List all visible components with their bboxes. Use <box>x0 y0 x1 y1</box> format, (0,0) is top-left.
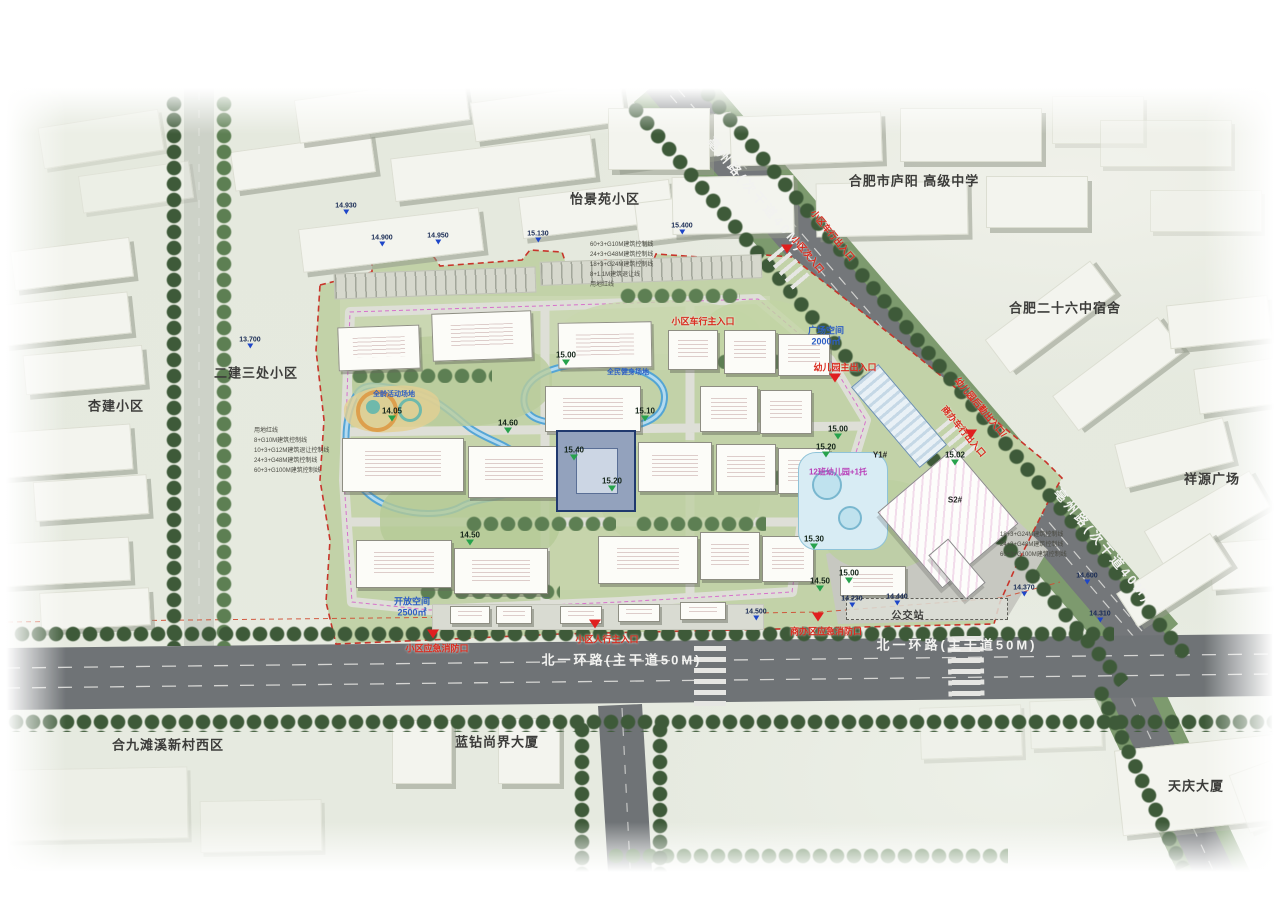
elevation-marker: 15.20 <box>602 477 622 496</box>
playground-circle <box>838 506 862 530</box>
tree-row <box>8 714 1272 732</box>
area-label: 2000㎡ <box>811 335 840 348</box>
tree-grove <box>636 516 766 531</box>
tree-row <box>166 96 182 646</box>
residential-building <box>598 536 698 584</box>
playground-ring <box>366 400 380 414</box>
context-building <box>900 108 1042 162</box>
blue-marker: 15.130 <box>527 231 548 246</box>
context-label: 二建三处小区 <box>214 363 298 382</box>
entrance-label: 小区车行主入口 <box>671 315 734 328</box>
residential-building <box>356 540 452 588</box>
blue-marker: 14.230 <box>841 596 862 611</box>
tree-grove <box>466 516 616 531</box>
setback-annotation: 用地红线8+G10M建筑控制线10+3+G12M建筑退让控制线24+3+G48M… <box>254 426 329 476</box>
road-label: 北一环路(主干道50M) <box>542 650 703 669</box>
context-label: 合九滩溪新村西区 <box>112 735 224 754</box>
context-building <box>1100 120 1232 167</box>
context-label: 天庆大厦 <box>1168 776 1224 795</box>
elevation-marker: 14.50 <box>460 531 480 550</box>
blue-marker: 13.700 <box>239 337 260 352</box>
setback-annotation: 60+3+G10M建筑控制线24+3+G48M建筑控制线18+3+G24M建筑控… <box>590 240 653 290</box>
blue-marker: 14.440 <box>886 594 907 609</box>
road-label: 北一环路(主干道50M) <box>877 635 1038 654</box>
setback-annotation: 18+3+G24M建筑控制线24+3+G48M建筑控制线60+3+G100M建筑… <box>1000 530 1067 560</box>
blue-marker: 15.400 <box>671 223 692 238</box>
tree-grove <box>352 368 492 383</box>
context-label: 合肥二十六中宿舍 <box>1009 298 1121 317</box>
elevation-marker: 15.00 <box>556 351 576 370</box>
map-canvas: 怡景苑小区合肥市庐阳 高级中学合肥二十六中宿舍祥源广场二建三处小区杏建小区合九滩… <box>6 88 1274 872</box>
elevation-marker: 14.50 <box>810 577 830 596</box>
shop-unit <box>618 604 660 622</box>
residential-building <box>700 386 758 432</box>
elevation-marker: 15.10 <box>635 407 655 426</box>
blue-marker: 14.500 <box>745 609 766 624</box>
context-building <box>33 474 150 522</box>
clubhouse-building <box>556 430 636 512</box>
tree-row <box>652 722 668 872</box>
residential-building <box>668 330 718 370</box>
residential-building <box>337 325 420 372</box>
entrance-label: 商办区应急消防口 <box>790 625 862 638</box>
elevation-marker: 15.20 <box>816 443 836 462</box>
context-building <box>39 587 151 631</box>
residential-building <box>638 442 712 492</box>
area-label: 全民健身场地 <box>607 367 649 377</box>
context-building <box>200 799 323 853</box>
context-label: 杏建小区 <box>88 396 144 415</box>
residential-building <box>700 532 760 580</box>
context-label: 祥源广场 <box>1184 469 1240 488</box>
residential-building <box>545 386 641 432</box>
blue-marker: 14.370 <box>1013 585 1034 600</box>
entrance-marker <box>427 630 439 645</box>
entrance-marker <box>589 620 601 635</box>
elevation-marker: 14.60 <box>498 419 518 438</box>
residential-building <box>431 310 533 361</box>
context-building <box>6 423 133 478</box>
area-label: 2500㎡ <box>397 606 426 619</box>
entrance-marker <box>812 613 824 628</box>
elevation-marker: 15.00 <box>839 569 859 588</box>
blue-marker: 14.950 <box>427 233 448 248</box>
site-label: Y1# <box>873 451 887 460</box>
context-label: 蓝钻尚界大厦 <box>455 732 539 751</box>
blue-marker: 14.310 <box>1089 611 1110 626</box>
entrance-marker <box>829 374 841 389</box>
blue-marker: 14.930 <box>335 203 356 218</box>
site-label: S2# <box>948 496 962 505</box>
site-plan-page: 怡景苑小区合肥市庐阳 高级中学合肥二十六中宿舍祥源广场二建三处小区杏建小区合九滩… <box>0 0 1280 905</box>
residential-building <box>760 390 812 434</box>
elevation-marker: 15.02 <box>945 451 965 470</box>
elevation-marker: 15.40 <box>564 446 584 465</box>
area-label: 全龄活动场地 <box>373 389 415 399</box>
entrance-label: 幼儿园主出入口 <box>813 361 876 374</box>
shop-unit <box>450 606 490 624</box>
residential-building <box>724 330 776 374</box>
context-label: 公交站 <box>892 607 925 622</box>
residential-building <box>454 548 548 594</box>
tree-row <box>608 848 1008 864</box>
context-label: 合肥市庐阳 高级中学 <box>849 171 980 190</box>
elevation-marker: 15.30 <box>804 535 824 554</box>
shop-unit <box>680 602 726 620</box>
blue-marker: 14.900 <box>371 235 392 250</box>
bus-bay <box>846 598 1008 620</box>
context-building <box>1150 190 1262 232</box>
residential-building <box>716 444 776 492</box>
residential-building <box>342 438 464 492</box>
elevation-marker: 15.00 <box>828 425 848 444</box>
context-label: 怡景苑小区 <box>570 189 640 208</box>
shop-unit <box>496 606 532 624</box>
context-building <box>986 176 1088 228</box>
elevation-marker: 14.05 <box>382 407 402 426</box>
entrance-marker <box>965 430 977 445</box>
entrance-marker <box>781 245 793 260</box>
tree-grove <box>620 288 740 303</box>
context-building <box>6 537 131 588</box>
entrance-label: 小区人行主入口 <box>575 633 638 646</box>
tree-row <box>574 722 590 872</box>
context-building <box>919 704 1023 760</box>
context-building <box>6 766 189 841</box>
residential-building <box>468 446 560 498</box>
site-label: 12班幼儿园+1托 <box>809 467 867 478</box>
blue-marker: 14.600 <box>1076 573 1097 588</box>
